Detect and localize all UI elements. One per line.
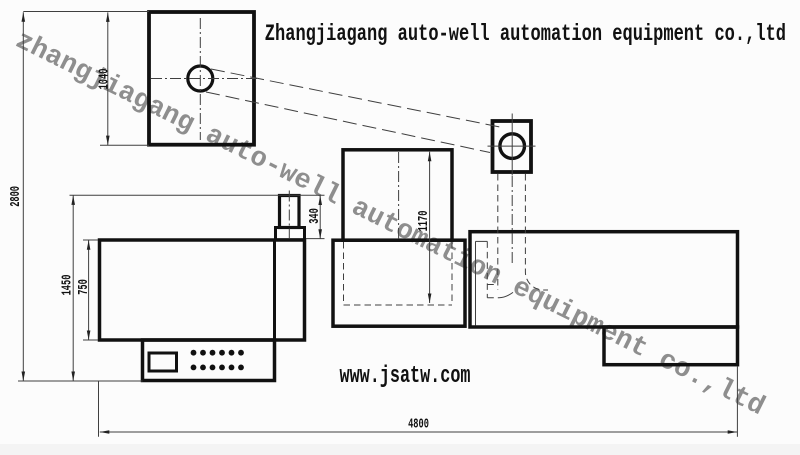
svg-text:Zhangjiagang auto-well automat: Zhangjiagang auto-well automation equipm… [265, 22, 786, 48]
svg-text:340: 340 [307, 208, 323, 224]
svg-text:www.jsatw.com: www.jsatw.com [340, 363, 471, 390]
svg-text:750: 750 [76, 279, 92, 295]
svg-text:4800: 4800 [408, 417, 429, 433]
svg-text:1450: 1450 [59, 275, 75, 296]
svg-text:2800: 2800 [8, 186, 24, 207]
svg-text:1040: 1040 [96, 69, 112, 90]
svg-text:1170: 1170 [416, 211, 432, 232]
